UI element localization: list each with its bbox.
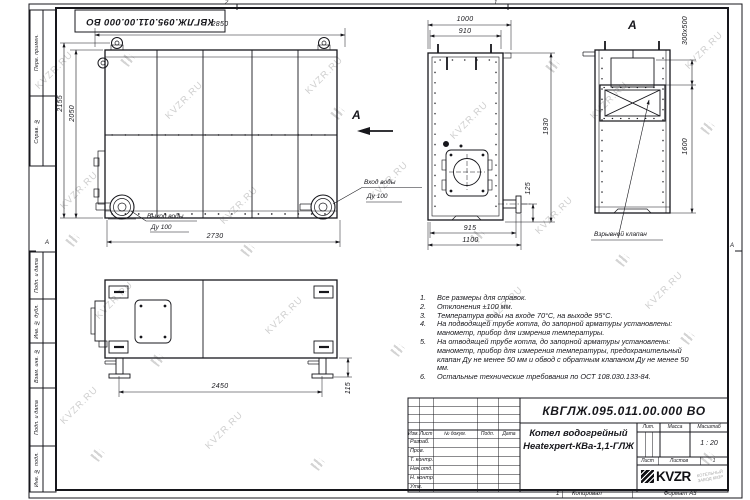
dim-300x500: 300х500 [682, 16, 689, 45]
row-n-kontr: Н. контр. [410, 475, 434, 481]
product-name-line1: Котел водогрейный [522, 427, 635, 440]
note-item: 6.Остальные технические требования по ОС… [420, 373, 720, 382]
dim-1600: 1600 [682, 138, 689, 155]
col-header-data: Дата [498, 431, 520, 437]
row-prov: Пров. [410, 448, 424, 454]
outlet-label: Выход воды [147, 213, 184, 220]
note-text: На отводящей трубе котла, до запорной ар… [437, 338, 695, 373]
zone-number-top-right: 1 [494, 0, 497, 6]
side-stamp-perv-primen: Перв. примен. [30, 10, 43, 96]
drawing-sheet: KVZR.RU KVZR.RU KVZR.RU KVZR.RU KVZR.RU … [0, 0, 750, 500]
scale-value: 1 : 20 [690, 440, 728, 447]
dim-2850: 2850 [185, 21, 255, 28]
lit-label: Лит. [637, 424, 660, 430]
inlet-dn-label: Ду 100 [367, 193, 388, 200]
scale-label: Масштаб [690, 424, 728, 430]
side-stamp-podp-data-1: Подп. и дата [30, 252, 43, 299]
title-block-doc-number: КВГЛЖ.095.011.00.000 ВО [522, 404, 726, 418]
inlet-label: Вход воды [364, 179, 396, 186]
note-text: На подводящей трубе котла, до запорной а… [437, 320, 695, 338]
bottom-page-number: 1 [556, 491, 559, 497]
row-razrab: Разраб. [410, 439, 430, 445]
dim-1000: 1000 [435, 16, 495, 23]
side-view-linework [91, 280, 352, 397]
dim-915: 915 [445, 225, 495, 232]
mass-label: Масса [660, 424, 690, 430]
side-stamp-podp-data-2: Подп. и дата [30, 388, 43, 446]
side-stamp-inv-dubl: Инв. № дубл. [30, 299, 43, 343]
row-nach-otd: Нач.отд. [410, 466, 433, 472]
col-header-podp: Подп. [477, 431, 498, 437]
dim-2730: 2730 [180, 233, 250, 240]
dim-2450: 2450 [185, 383, 255, 390]
zone-number-top-left: 2 [225, 0, 228, 6]
side-stamp-inv-podl: Инв. № подл. [30, 446, 43, 492]
view-a-direction-label: А [352, 108, 361, 122]
front-view-linework [60, 28, 422, 247]
row-t-kontr: Т. контр. [410, 457, 433, 463]
side-stamp-vzam-inv: Взам. инв. № [30, 343, 43, 388]
sheets-label: Листов [658, 458, 700, 464]
kvzr-logo: KVZR [641, 469, 691, 484]
a-view-linework [583, 41, 696, 240]
dim-1930: 1930 [543, 118, 550, 135]
dim-1100: 1100 [443, 237, 498, 244]
kvzr-logo-text: KVZR [656, 469, 691, 484]
product-name-line2: Heatexpert-КВа-1,1-ГЛЖ [522, 440, 635, 453]
explosion-valve-label: Взрывной клапан [594, 231, 647, 238]
row-utv: Утв. [410, 484, 422, 490]
dim-2155: 2155 [57, 95, 64, 112]
copied-label: Копировал [572, 491, 602, 497]
sheets-value: 1 [700, 458, 728, 464]
note-item: 5.На отводящей трубе котла, до запорной … [420, 338, 720, 373]
note-number: 4. [420, 320, 437, 329]
dim-2050: 2050 [69, 105, 76, 122]
dim-910: 910 [440, 28, 490, 35]
zone-letter-right: А [730, 243, 734, 249]
dim-125: 125 [525, 182, 532, 195]
sheet-label: Лист [637, 458, 658, 464]
col-header-izm: Изм. [408, 431, 419, 437]
sheet-frame [29, 4, 742, 498]
outlet-dn-label: Ду 100 [151, 224, 172, 231]
note-text: Остальные технические требования по ОСТ … [437, 373, 695, 382]
kvzr-logo-icon [641, 470, 654, 483]
col-header-docum: № докум. [433, 431, 477, 437]
technical-notes: 1.Все размеры для справок. 2.Отклонения … [420, 294, 720, 382]
note-number: 5. [420, 338, 437, 347]
format-label: Формат А3 [640, 491, 720, 497]
end-view-linework [428, 20, 555, 250]
note-number: 6. [420, 373, 437, 382]
note-item: 4.На подводящей трубе котла, до запорной… [420, 320, 720, 338]
side-stamp-sprav-no: Справ. № [30, 96, 43, 166]
view-a-label: А [628, 18, 637, 32]
col-header-list: Лист [419, 431, 433, 437]
dim-115: 115 [345, 382, 352, 394]
zone-letter-left: А [45, 240, 49, 246]
